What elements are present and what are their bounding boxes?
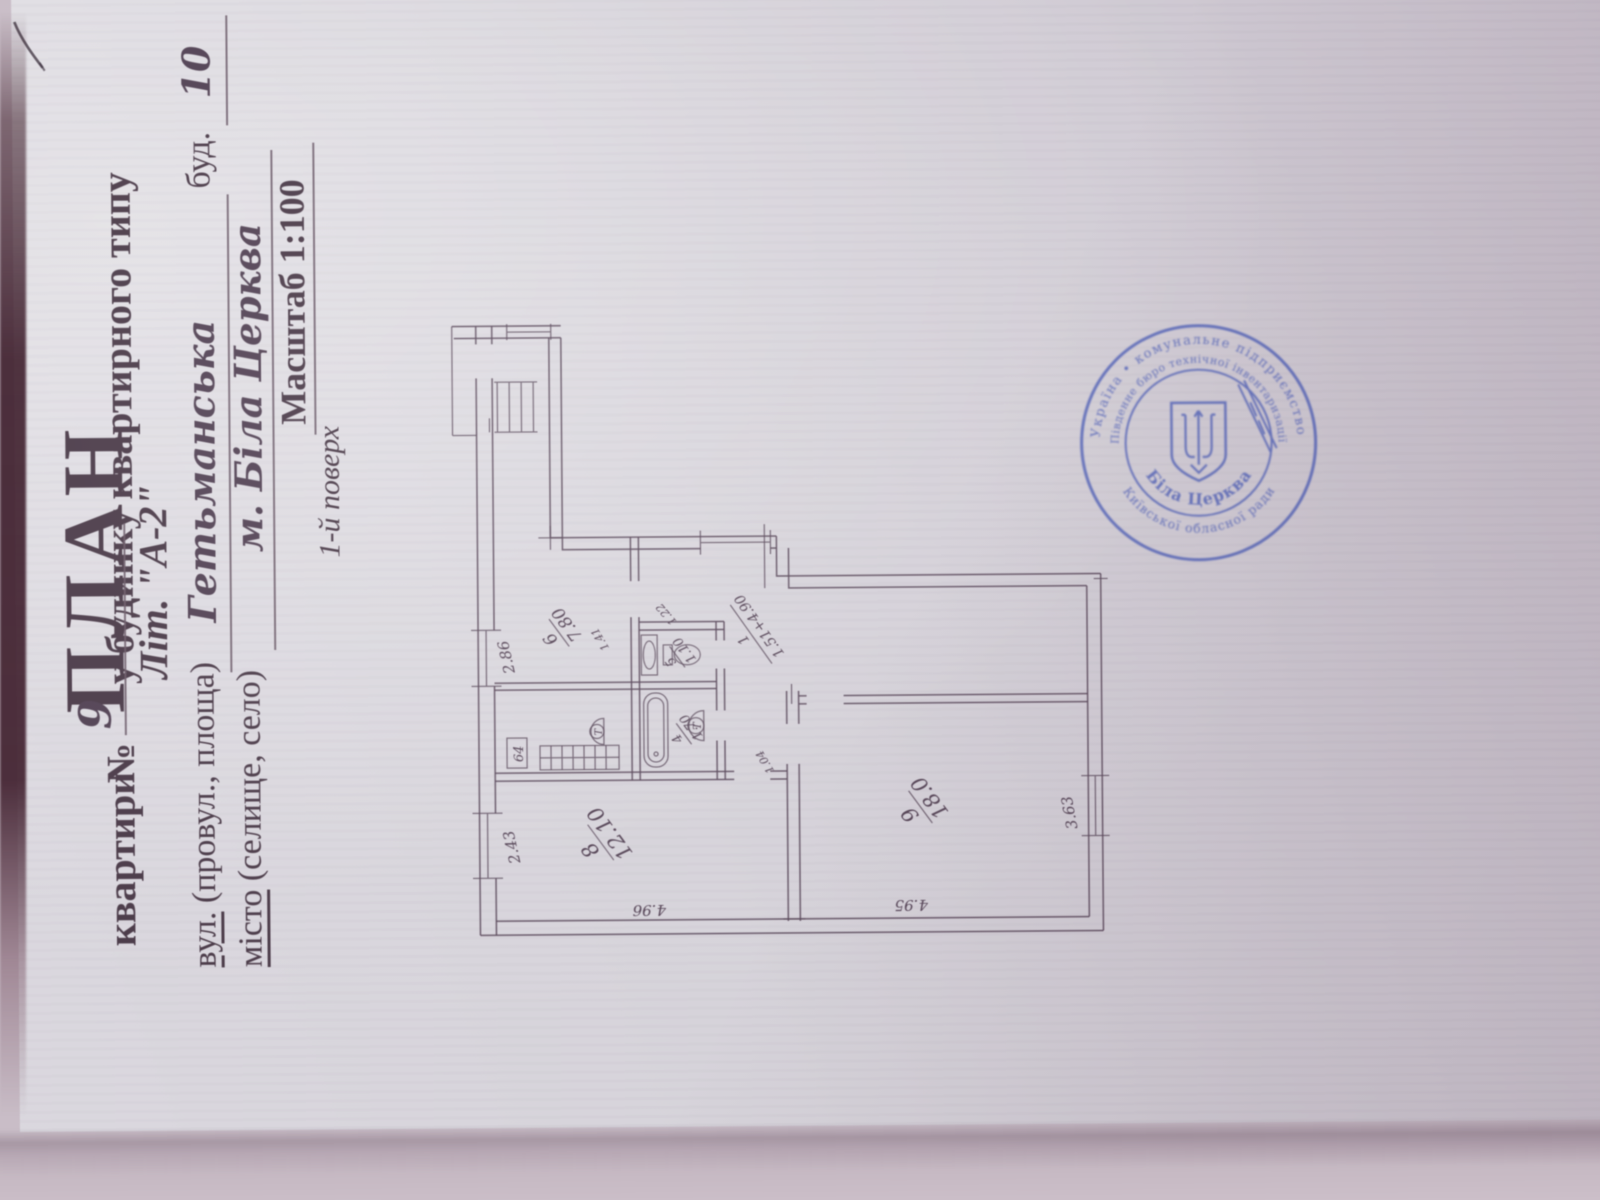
- dim-2-86: 2.86: [494, 639, 519, 677]
- svg-text:1.51+4.90: 1.51+4.90: [732, 591, 788, 661]
- dim-3-63: 3.63: [1058, 795, 1082, 831]
- dim-2-43: 2.43: [499, 829, 524, 866]
- table-below-paper-edge: [0, 1118, 1600, 1200]
- washbasin: [641, 635, 657, 675]
- dim-1-22: 1.22: [653, 601, 679, 628]
- gas-box: 64: [507, 738, 527, 768]
- photo-of-floor-plan-document: ПЛАН квартири № 9 у будинку квартирного …: [0, 0, 1600, 1200]
- porch-and-steps: [452, 326, 538, 436]
- dim-1-41: 1.41: [588, 625, 612, 653]
- svg-text:64: 64: [512, 745, 527, 762]
- building-label: буд.: [180, 132, 218, 189]
- street-label: вул. (провул., площа): [184, 662, 224, 968]
- svg-text:4: 4: [669, 730, 687, 746]
- outer-walls: [452, 322, 1104, 936]
- interior-walls: [493, 534, 1089, 924]
- floor-label: 1-й поверх: [312, 426, 347, 558]
- dim-1-04: 1.04: [753, 748, 777, 776]
- room-label-1-corridor: 1 1.51+4.90: [715, 591, 789, 674]
- room-label-8: 8 12.10: [562, 802, 638, 880]
- floor-plan-drawing: 64 Т Т: [449, 308, 1119, 938]
- letter-designation: Літ. "А-2": [129, 484, 178, 679]
- building-rule: [225, 15, 228, 125]
- scale-label: Масштаб 1:100: [271, 179, 315, 425]
- city-value: м. Біла Церква: [225, 223, 272, 552]
- city-label: місто (селище, село): [230, 670, 270, 968]
- duct-heater-icon: Т: [590, 718, 605, 744]
- dark-background-strip: [0, 0, 26, 1200]
- subtitle-word-apartment: квартири: [97, 772, 145, 947]
- trident-shield-icon: [1171, 403, 1226, 481]
- room-label-5: 5 1.10: [656, 634, 700, 677]
- building-number-value: 10: [173, 46, 218, 99]
- duct-block: [540, 745, 619, 770]
- bathtub: [644, 693, 669, 767]
- room-label-4: 4 1.70: [663, 711, 707, 754]
- dim-4-95: 4.95: [894, 896, 929, 914]
- dim-4-96: 4.96: [632, 901, 667, 919]
- document-page: ПЛАН квартири № 9 у будинку квартирного …: [11, 0, 1600, 1132]
- svg-text:6: 6: [540, 628, 563, 649]
- windows: [469, 319, 1110, 878]
- round-stamp: Україна • комунальне підприємство Київсь…: [1066, 310, 1332, 576]
- svg-text:Т: Т: [594, 727, 605, 735]
- street-value: Гетьманська: [178, 320, 225, 623]
- numero-sign: №: [97, 743, 144, 784]
- room-label-9: 9 18.0: [885, 772, 953, 839]
- room-label-6: 6 7.80: [530, 603, 586, 659]
- apartment-number-value: 9: [71, 699, 122, 730]
